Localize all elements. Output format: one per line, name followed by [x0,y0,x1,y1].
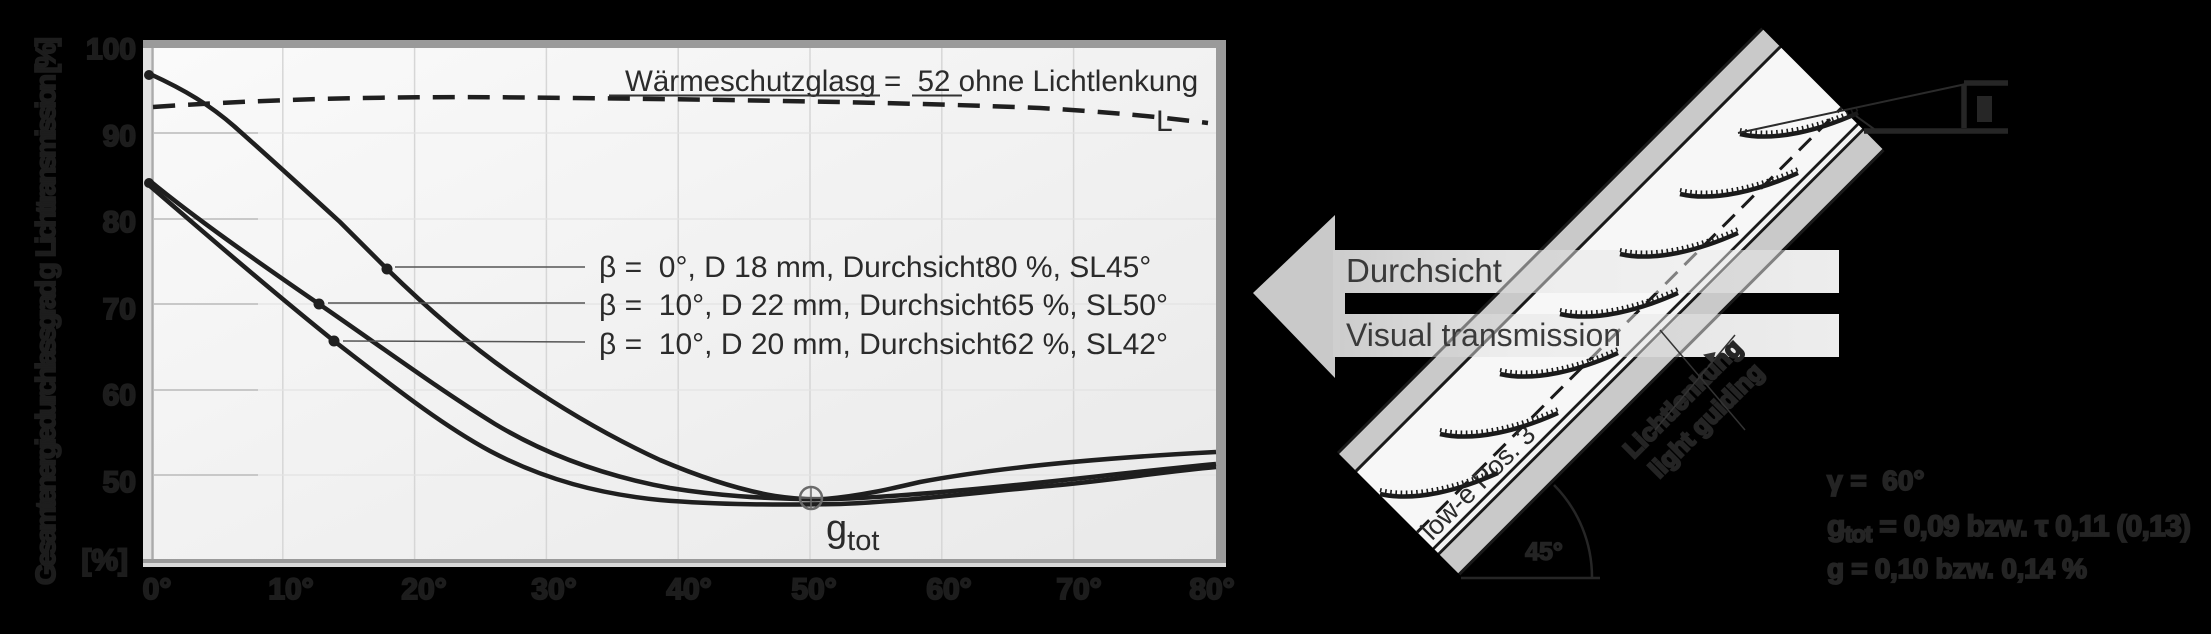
svg-text:10°: 10° [268,573,313,606]
svg-text:Visual transmission: Visual transmission [1346,317,1621,353]
svg-text:Gesamtenergiedurchlassgrad g: Gesamtenergiedurchlassgrad g Lichttransm… [30,37,61,585]
svg-text:60: 60 [103,379,136,412]
svg-text:30°: 30° [531,573,576,606]
svg-text:Wärmeschutzglasg = 52 ohne Li: Wärmeschutzglasg = 52 ohne Lichtlenkung [625,65,1198,98]
svg-text:80: 80 [103,206,136,239]
svg-text:gtot = 0,09 bzw. τ 0,11 (0,13): gtot = 0,09 bzw. τ 0,11 (0,13) [1827,510,2191,547]
svg-text:70: 70 [103,293,136,326]
svg-text:γ = 60°: γ = 60° [1827,465,1925,496]
svg-text:80°: 80° [1189,573,1234,606]
svg-text:70°: 70° [1056,573,1101,606]
svg-text:20°: 20° [401,573,446,606]
svg-text:90: 90 [103,120,136,153]
svg-text:β = 10°, D 22 mm, Durchsicht6: β = 10°, D 22 mm, Durchsicht65 %, SL50° [599,289,1168,322]
svg-text:100: 100 [86,33,136,66]
svg-text:50°: 50° [791,573,836,606]
svg-text:β = 0°, D 18 mm, Durchsicht80: β = 0°, D 18 mm, Durchsicht80 %, SL45° [599,251,1151,284]
svg-text:40°: 40° [666,573,711,606]
svg-text:Durchsicht: Durchsicht [1346,252,1502,289]
svg-text:β = 10°, D 20 mm, Durchsicht6: β = 10°, D 20 mm, Durchsicht62 %, SL42° [599,328,1168,361]
svg-text:[%]: [%] [81,544,128,577]
svg-text:60°: 60° [926,573,971,606]
svg-text:g = 0,10 bzw. 0,14 %: g = 0,10 bzw. 0,14 % [1827,553,2087,584]
svg-text:50: 50 [103,466,136,499]
svg-text:45°: 45° [1525,538,1563,566]
svg-text:0°: 0° [143,573,172,606]
svg-text:L: L [1156,105,1173,138]
